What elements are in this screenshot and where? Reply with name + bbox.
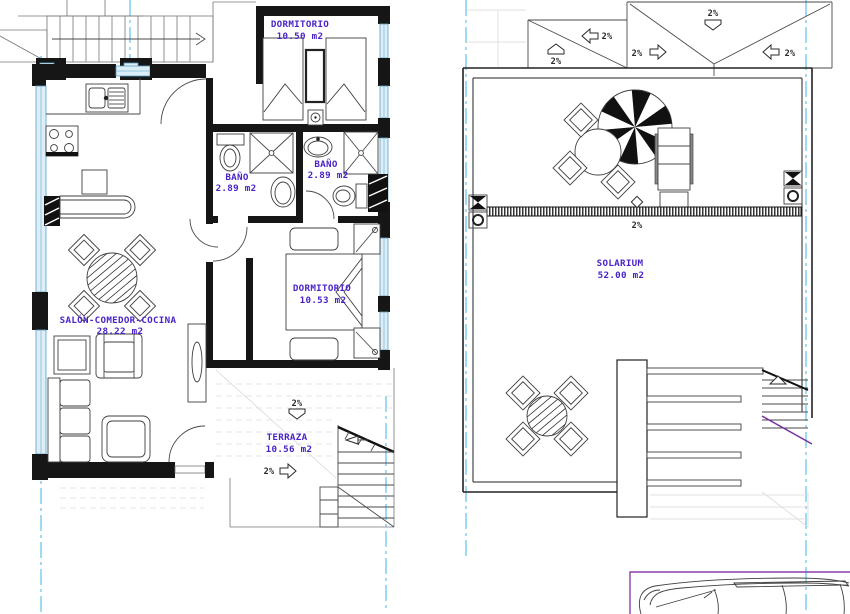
terrace-stairs [320,425,394,527]
nightstand [306,50,324,102]
slope-label: 2% [264,467,275,477]
room-label-terraza: TERRAZA [267,432,308,443]
drain-right [784,171,802,204]
roof-outline [528,2,832,76]
slope-label: 2% [785,49,796,59]
room-label-salon: SALÓN-COMEDOR-COCINA [60,314,177,326]
shower [250,133,293,173]
roof: 2% 2% 2% 2% 2% [466,2,832,76]
channel-diamond-icon [631,196,642,207]
slope-label: 2% [708,9,719,19]
room-label-bano-2: BAÑO [314,159,337,170]
room-area-bano-1: 2.89 m2 [216,183,257,194]
planter-wall [617,360,647,517]
coffee-table [102,416,150,462]
tv-unit [188,324,206,402]
wardrobe [354,224,380,254]
kitchen-tall-unit [44,196,60,226]
car [639,578,849,614]
slope-arrow-left-icon [763,45,779,59]
slope-arrow-right-icon [280,464,296,478]
solarium-stairs [647,368,812,527]
room-area-terraza: 10.56 m2 [266,444,313,455]
room-label-solarium: SOLARIUM [597,258,644,269]
kitchen-sink [86,84,128,112]
room-area-salon: 28.22 m2 [97,326,144,337]
slope-arrow-down-icon [705,20,721,30]
slope-label: 2% [632,49,643,59]
nightstand [290,338,338,360]
room-label-dormitorio-2: DORMITORIO [293,283,351,294]
apartment-floor-plan: 2% 2% DORMITORIO 10.50 m2 BAÑO 2.89 m2 B… [0,0,394,527]
ground-steps [60,488,204,508]
nightstand [290,228,338,250]
parking-space [630,572,850,614]
room-area-solarium: 52.00 m2 [598,270,645,281]
outdoor-dining-set [506,376,588,456]
kitchen-cabinet [82,170,107,194]
bedroom-1 [263,38,366,125]
shower [344,132,378,174]
slope-label: 2% [292,399,303,409]
slope-arrow-down-icon [289,409,305,419]
roof-slope-indicators: 2% 2% 2% 2% 2% [548,9,796,67]
room-label-bano-1: BAÑO [225,172,248,183]
bed [326,38,366,120]
sun-lounger [655,128,693,216]
neighbour-roof-ghost [466,10,526,66]
kitchen-peninsula [60,196,135,218]
solarium-floor-plan: 2% 2% 2% 2% 2% [463,2,832,527]
room-area-dormitorio-1: 10.50 m2 [277,31,324,42]
lower-level-ghost [650,492,808,527]
sofa [48,378,90,462]
slope-arrow-up-icon [548,44,564,54]
kitchen [46,78,140,218]
floor-lamp [308,110,323,125]
washbasin [304,137,332,157]
slope-arrow-right-icon [650,45,666,59]
dining-table-set [68,234,155,321]
slope-label: 2% [602,32,613,42]
drainage-channel: 2% [487,196,801,231]
toilet [333,184,367,208]
stair-arrow-icon [346,436,358,444]
channel-slope-label: 2% [632,221,643,231]
terrace-floor-joints [216,370,392,478]
slope-label: 2% [551,57,562,67]
washbasin [271,177,295,207]
plan-canvas: 2% 2% DORMITORIO 10.50 m2 BAÑO 2.89 m2 B… [0,0,850,614]
stove [46,126,78,156]
room-label-dormitorio-1: DORMITORIO [271,19,329,30]
living-area [48,324,206,462]
wardrobe [354,328,380,358]
slope-arrow-left-icon [582,29,598,43]
closet [368,174,388,212]
side-table [54,336,90,374]
bed [263,38,303,120]
room-area-bano-2: 2.89 m2 [308,170,349,181]
drain-left [469,195,487,228]
armchair [96,334,142,378]
toilet [217,134,244,171]
floor-plan-drawing: 2% 2% DORMITORIO 10.50 m2 BAÑO 2.89 m2 B… [0,0,850,614]
room-area-dormitorio-2: 10.53 m2 [300,295,347,306]
bathroom-1 [217,133,295,207]
